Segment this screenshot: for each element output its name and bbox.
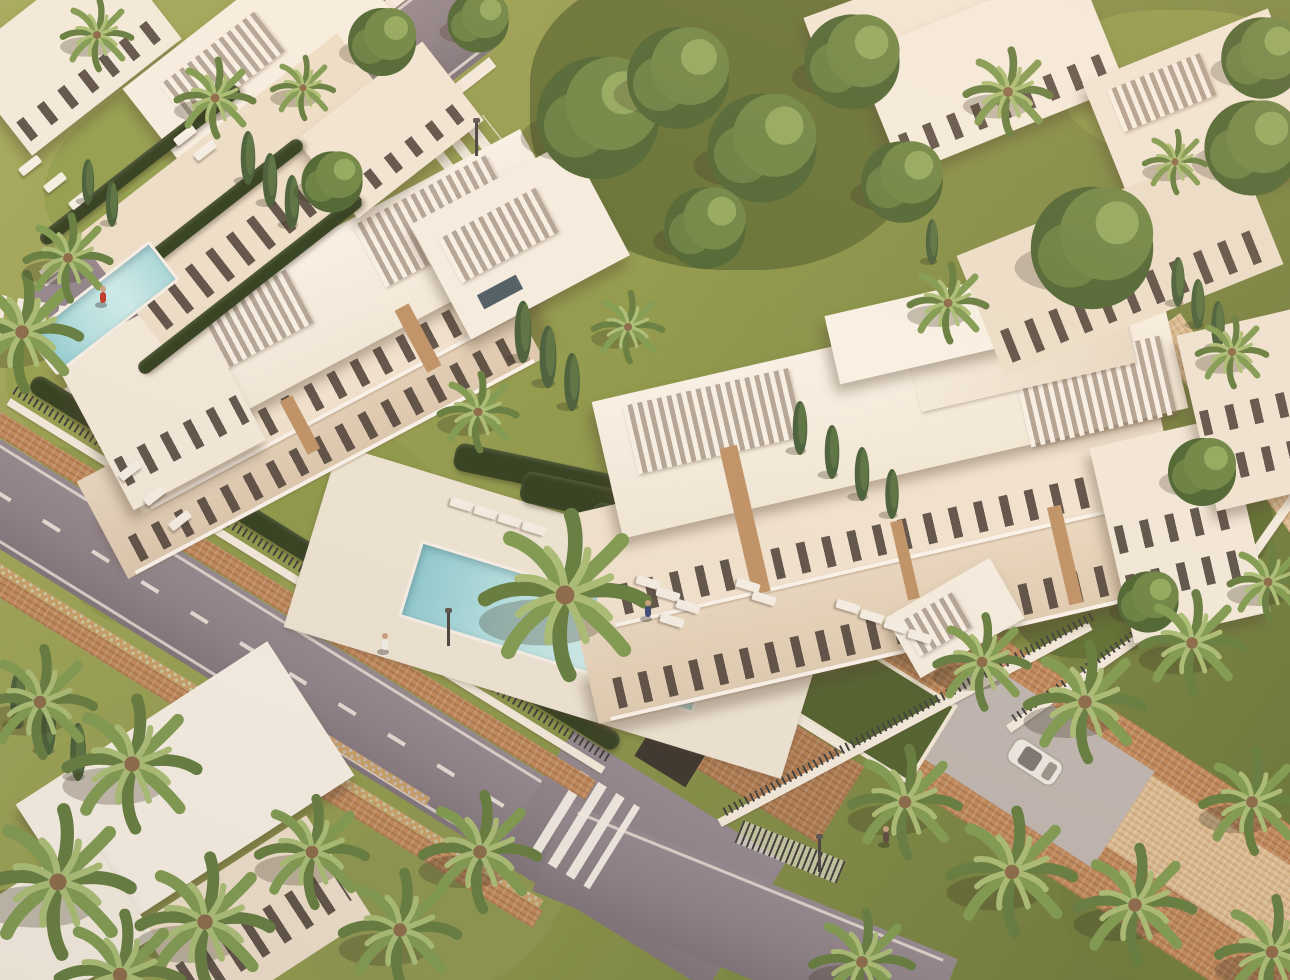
street-lamp	[818, 838, 821, 872]
palm-tree	[0, 649, 93, 755]
person-pedestrian	[878, 826, 890, 848]
sun-lounger	[18, 155, 42, 177]
cypress-tree	[920, 219, 938, 265]
street-lamp	[447, 612, 450, 646]
cypress-tree	[2, 671, 26, 729]
window-row	[1199, 387, 1290, 436]
street-lamp	[475, 122, 478, 156]
roof-pergola	[438, 188, 559, 284]
window-row	[1124, 547, 1256, 603]
window-row	[1210, 434, 1290, 483]
palm-tree	[591, 293, 662, 361]
roof-pergola	[622, 368, 803, 474]
cypress-tree	[32, 697, 56, 755]
aerial-architectural-render	[0, 0, 1290, 980]
cypress-tree	[556, 353, 580, 411]
